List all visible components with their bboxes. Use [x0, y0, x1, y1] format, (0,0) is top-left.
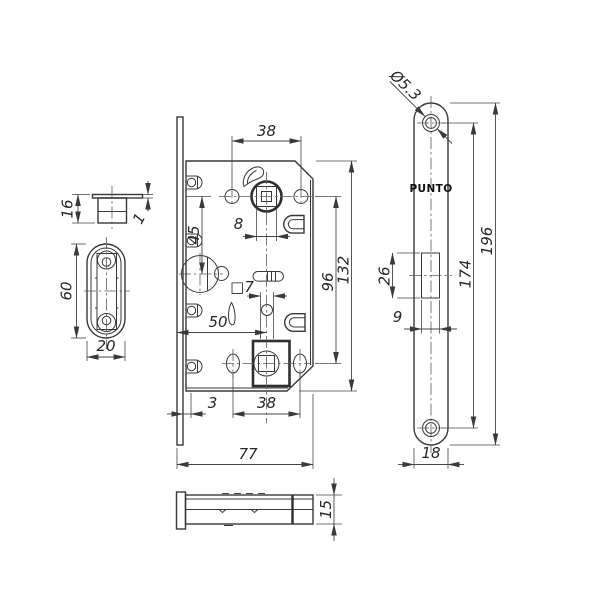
dim-latch-width: 9	[393, 308, 403, 326]
spring-clip-top	[284, 216, 304, 234]
faceplate-edge	[177, 117, 183, 445]
dim-hub-to-cylinder: 45	[185, 225, 203, 244]
dim-case-height: 132	[335, 256, 353, 285]
dim-handle-square: 8	[234, 215, 244, 233]
dim-bottom-hole-spacing: 38	[257, 394, 276, 412]
small-roller	[215, 267, 229, 281]
dim-faceplate-length: 196	[478, 227, 496, 256]
mortise-lock-drawing: 16 1 60 20	[0, 0, 600, 600]
pawl-shape	[229, 303, 236, 325]
dim-top-hole-spacing: 38	[257, 122, 276, 140]
dim-case-depth: 77	[238, 445, 258, 463]
brand-text: PUNTO	[409, 183, 452, 195]
dim-case-thickness: 15	[317, 500, 335, 519]
dim-backset: 50	[208, 313, 227, 331]
spring-clip-bottom	[285, 314, 305, 332]
dim-faceplate-width: 18	[421, 444, 440, 462]
screw-tab	[186, 360, 202, 373]
dim-latch-height: 26	[376, 266, 394, 285]
pin-hole	[262, 305, 273, 316]
screw-tab	[186, 176, 202, 189]
lock-case-view: 38 45 8 96 132 □7 50	[167, 117, 357, 469]
dim-strike-width: 20	[96, 337, 115, 355]
dim-screw-hole-dia: Ø5.3	[386, 66, 425, 104]
faceplate-view: PUNTO Ø5.3 26 9 174 196 18	[376, 66, 501, 469]
strike-side-view: 16 1	[59, 181, 154, 229]
screw-tab	[186, 304, 202, 317]
dim-strike-flange: 1	[129, 210, 149, 227]
technical-drawing-page: 16 1 60 20	[0, 0, 600, 600]
adjustment-slot	[253, 272, 284, 282]
dim-strike-length: 60	[58, 281, 76, 300]
dim-wc-square: □7	[230, 278, 254, 296]
bottom-view: 15	[177, 478, 343, 541]
dim-strike-height: 16	[59, 199, 77, 218]
dim-screw-spacing: 174	[457, 260, 475, 289]
dim-faceplate-stand: 3	[208, 394, 218, 412]
strike-front-view: 60 20	[58, 237, 131, 361]
